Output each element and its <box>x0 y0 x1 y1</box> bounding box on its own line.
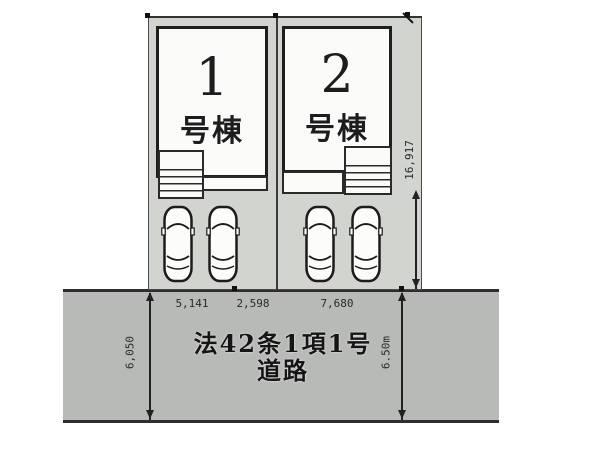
building-1-number: 1 <box>195 54 228 103</box>
depth-dimension-line <box>415 192 417 289</box>
tick-marker <box>399 286 404 291</box>
tick-marker <box>145 13 150 18</box>
road-label-line2: 道路 <box>168 358 398 385</box>
site-plan: 法42条1項1号 道路 1 号棟 2 号棟 <box>0 0 600 450</box>
road-label-line1: 法42条1項1号 <box>168 331 398 358</box>
dim-frontage-left: 5,141 <box>170 297 214 310</box>
dim-road-width-right: 6.50m <box>380 329 393 377</box>
road-dimension-line <box>149 293 151 420</box>
entry-steps-icon <box>158 150 204 199</box>
stair-treads <box>346 165 390 193</box>
tick-marker <box>273 13 278 18</box>
dim-arrow <box>412 279 420 288</box>
building-1-label: 号棟 <box>180 106 244 150</box>
dim-road-width-left: 6,050 <box>124 331 137 375</box>
dim-arrow <box>146 410 154 419</box>
dim-arrow <box>146 292 154 301</box>
dim-frontage-right: 7,680 <box>315 297 359 310</box>
building-2-annex <box>282 171 344 194</box>
dim-frontage-middle: 2,598 <box>231 297 275 310</box>
dim-depth: 16,917 <box>403 130 417 190</box>
dim-arrow <box>398 410 406 419</box>
car-icon <box>303 204 337 284</box>
stair-treads <box>160 169 202 197</box>
car-icon <box>349 204 383 284</box>
road-dimension-line <box>401 293 403 420</box>
car-icon <box>161 204 195 284</box>
building-2-number: 2 <box>320 51 353 100</box>
building-1-annex <box>202 176 268 191</box>
lot-divider-line <box>276 16 278 290</box>
tick-marker <box>232 286 237 291</box>
dim-arrow <box>412 190 420 199</box>
car-icon <box>206 204 240 284</box>
road-label: 法42条1項1号 道路 <box>168 331 398 385</box>
dim-arrow <box>398 292 406 301</box>
building-2-label: 号棟 <box>305 104 369 148</box>
entry-steps-icon <box>344 146 392 195</box>
